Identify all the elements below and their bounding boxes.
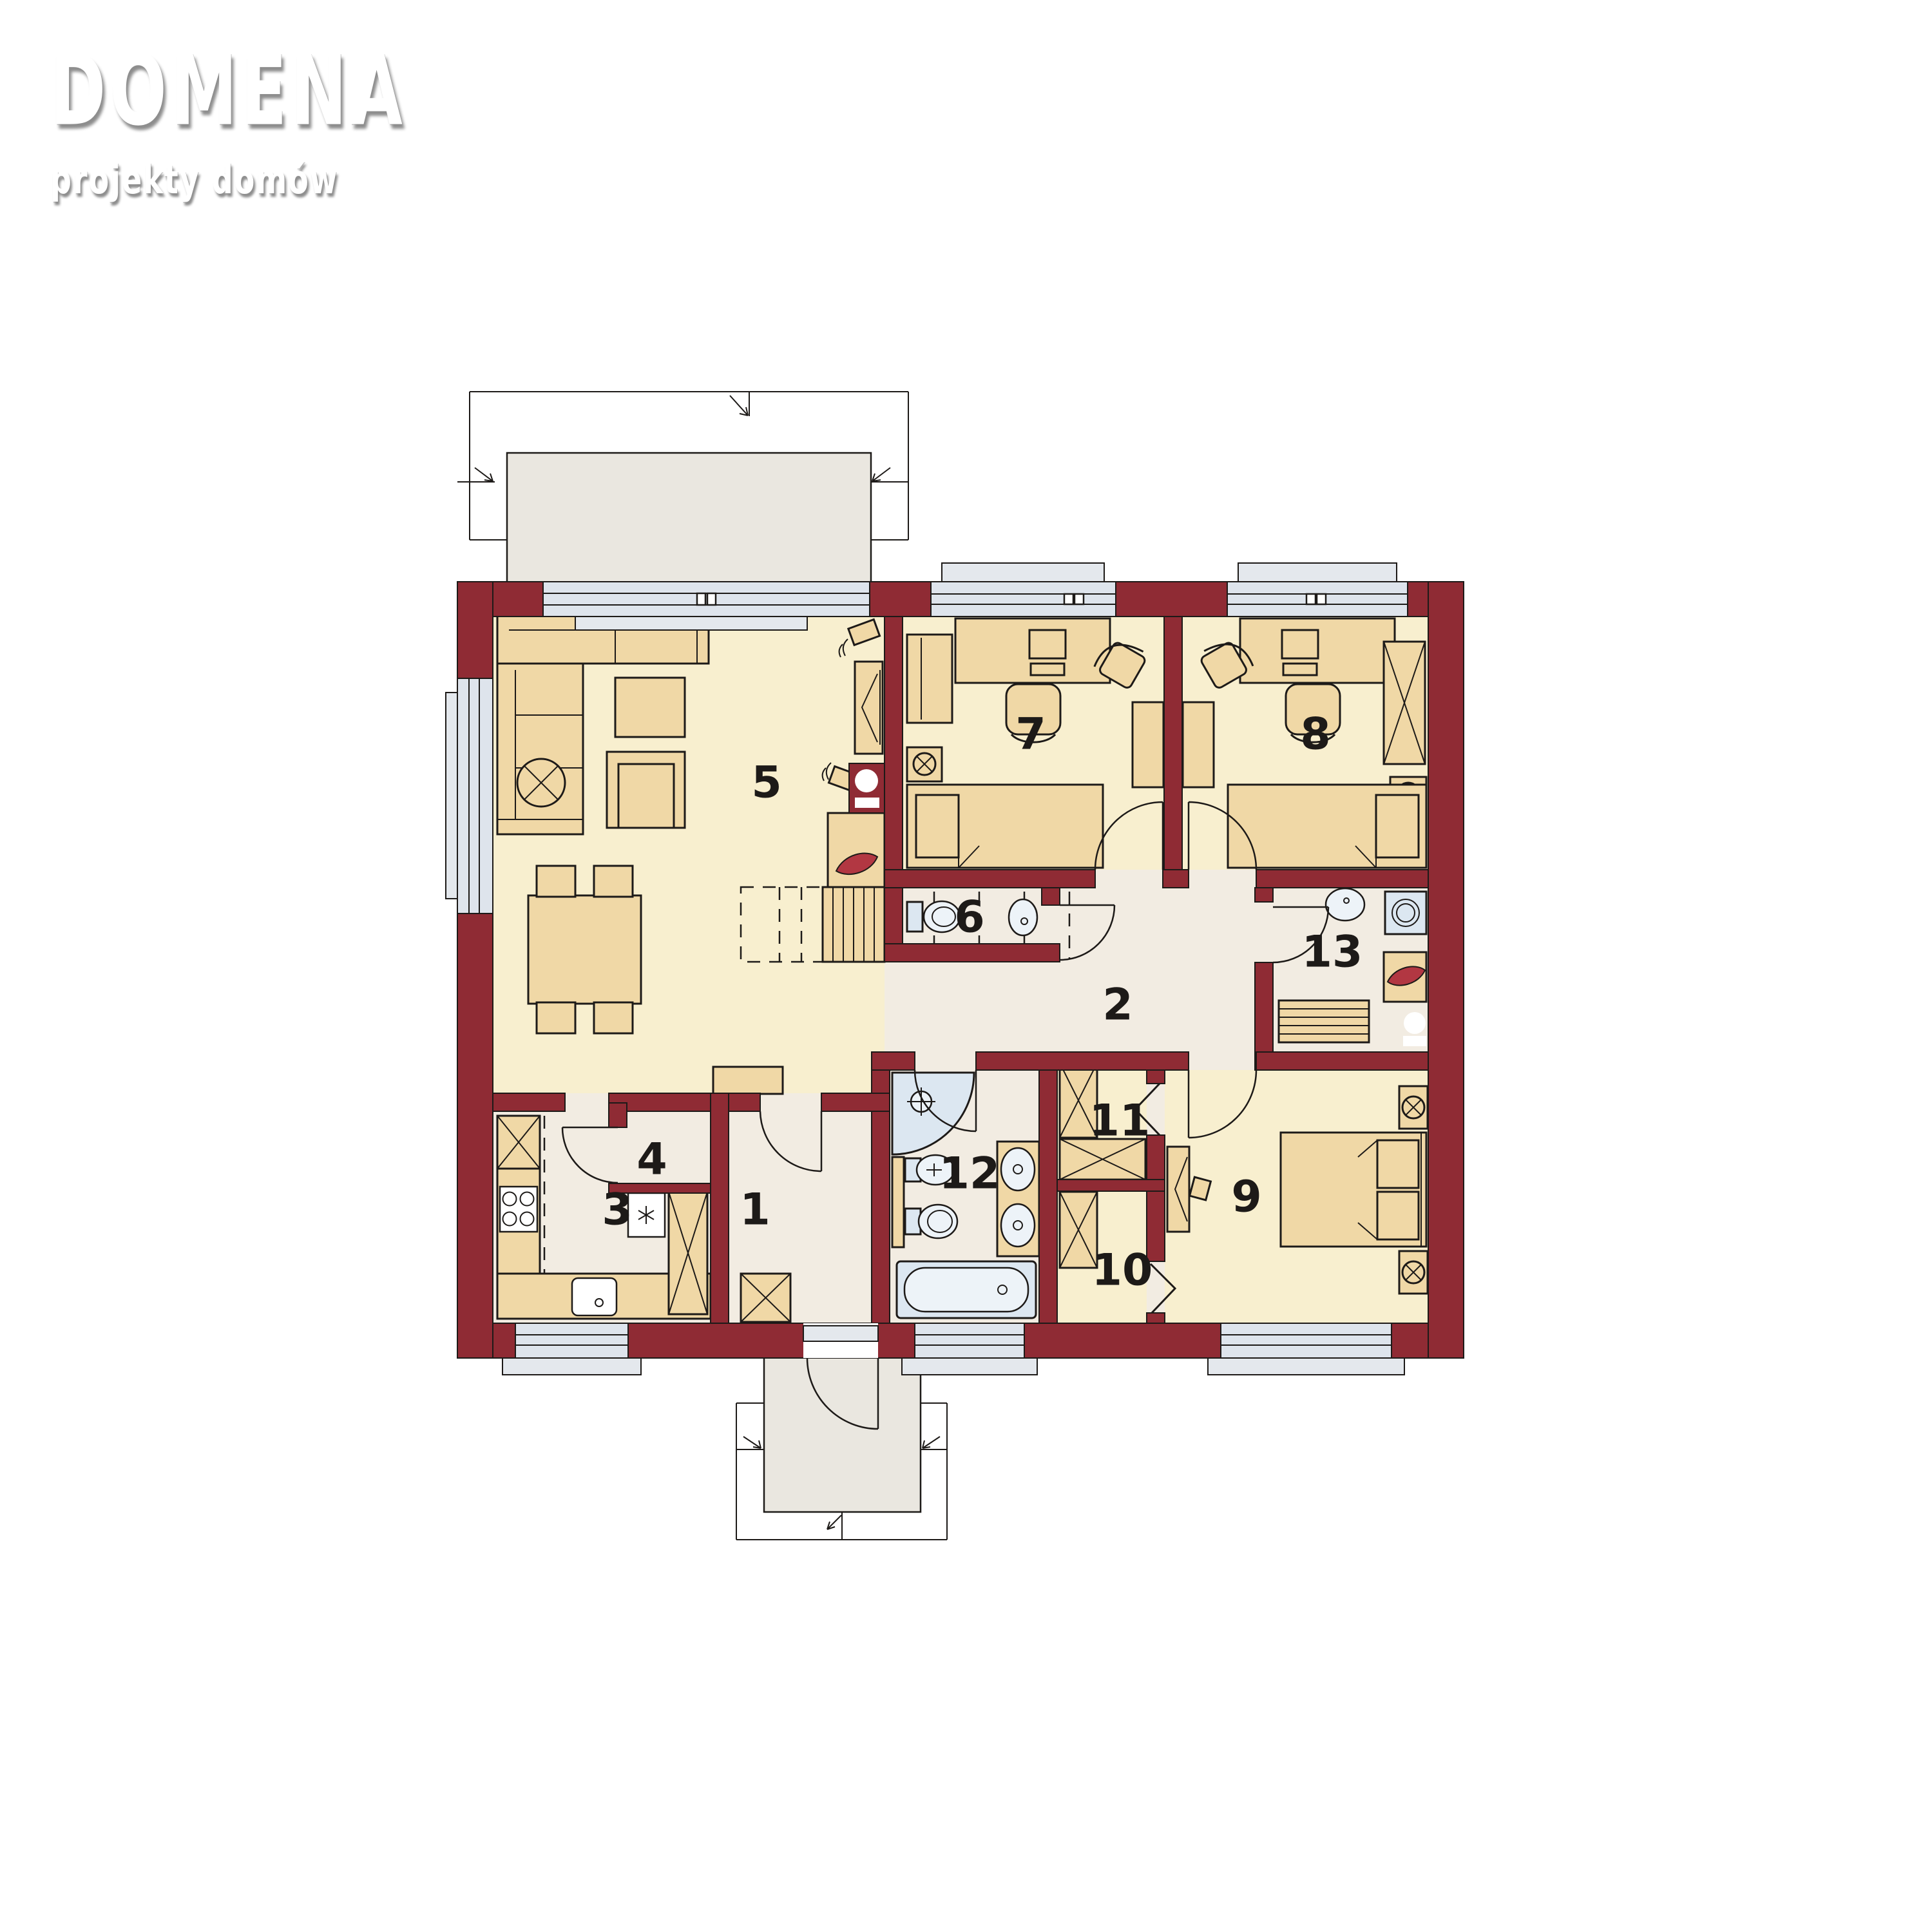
dining-chair — [537, 866, 575, 897]
wall-7-8 — [1164, 617, 1182, 871]
page: DOMENA projekty domów — [0, 0, 1932, 1932]
washbasin — [1009, 899, 1037, 935]
pillow — [916, 795, 959, 857]
terrace-arrow-top — [730, 392, 749, 416]
pillow — [1377, 1140, 1419, 1188]
wall-exterior-right — [1428, 582, 1464, 1358]
terrace-floor — [507, 453, 871, 586]
window-sill — [1238, 563, 1397, 582]
wall-hall-top-stub — [821, 1093, 890, 1111]
wall-toilet-bottom — [885, 944, 1060, 962]
pillow — [1377, 1192, 1419, 1239]
terrace — [457, 392, 908, 586]
porch-arrow-right — [921, 1437, 947, 1449]
boiler-vent-icon — [1403, 1036, 1426, 1046]
porch-arrow-bottom — [827, 1515, 841, 1529]
window-sill — [902, 1358, 1037, 1375]
window-mullion — [1064, 594, 1073, 604]
wall-5-7 — [885, 617, 903, 962]
wall-kitchen-hall — [711, 1093, 729, 1323]
window-mullion — [1075, 594, 1084, 604]
drying-rack — [1279, 1000, 1369, 1042]
entrance-threshold — [803, 1326, 878, 1341]
wall-pantry-left-stub — [609, 1103, 627, 1127]
room-label-2: 2 — [1102, 980, 1133, 1031]
shelf-cabinet — [1133, 702, 1163, 787]
window-sill — [1208, 1358, 1404, 1375]
chimney-vent-icon — [855, 798, 879, 808]
dining-table — [528, 895, 641, 1004]
wall-south-b — [976, 1052, 1189, 1070]
armchair-seat — [618, 764, 674, 828]
wall-south-a — [872, 1052, 915, 1070]
floor-plan: 12345678910111213 — [0, 0, 1932, 1932]
window-mullion — [1317, 594, 1326, 604]
room-label-6: 6 — [954, 892, 984, 943]
window-terrace-slider — [543, 582, 870, 617]
wall-rooms-top-b — [1163, 870, 1189, 888]
window-sill — [502, 1358, 641, 1375]
window-living-left — [457, 678, 493, 913]
window-bathroom — [915, 1323, 1024, 1358]
room-label-11: 11 — [1089, 1096, 1151, 1147]
sideboard — [713, 1067, 783, 1094]
tv-cabinet — [855, 662, 883, 754]
room-label-9: 9 — [1231, 1172, 1261, 1223]
room-label-7: 7 — [1015, 709, 1046, 760]
pillow — [1376, 795, 1419, 857]
sofa-left — [497, 664, 583, 834]
entrance-porch — [736, 1357, 947, 1540]
wall-kitchen-top-b — [609, 1093, 760, 1111]
stool — [1190, 1177, 1211, 1200]
window-mullion — [1306, 594, 1315, 604]
daybed — [907, 635, 952, 723]
wall-9-left-b — [1147, 1135, 1165, 1261]
window-sill — [942, 563, 1104, 582]
wall-south-c — [1256, 1052, 1428, 1070]
keyboard-icon — [1283, 664, 1317, 675]
slider-threshold — [575, 617, 807, 630]
chimney-flue-icon — [855, 769, 878, 792]
room-label-12: 12 — [939, 1149, 1000, 1200]
dining-chair — [594, 866, 633, 897]
room-label-5: 5 — [751, 758, 781, 808]
wall-toilet-right-stub — [1042, 888, 1060, 905]
wall-rooms-top-a — [885, 870, 1095, 888]
porch-arrow-left — [736, 1437, 764, 1449]
room-label-3: 3 — [602, 1185, 632, 1236]
keyboard-icon — [1031, 664, 1064, 675]
wall-9-left-c — [1147, 1313, 1165, 1323]
washing-machine — [1385, 892, 1426, 934]
window-room7 — [931, 582, 1116, 617]
wc-tank — [907, 902, 923, 932]
bath-shelf — [892, 1157, 904, 1247]
window-mullion — [697, 593, 705, 605]
monitor-icon — [1282, 630, 1318, 658]
boiler-icon — [1404, 1012, 1426, 1034]
dining-chair — [537, 1002, 575, 1033]
wall-9-left-a — [1147, 1070, 1165, 1084]
washbasin — [1001, 1148, 1035, 1191]
kitchen-sink — [572, 1278, 617, 1315]
shelf-cabinet — [1183, 702, 1214, 787]
room-label-10: 10 — [1092, 1245, 1153, 1296]
window-room9 — [1221, 1323, 1392, 1358]
room-label-1: 1 — [740, 1185, 770, 1236]
window-sill — [446, 693, 457, 899]
room-label-8: 8 — [1300, 709, 1330, 760]
terrace-arrow-right — [871, 468, 908, 482]
wall-bath-right — [1039, 1070, 1057, 1323]
room-label-4: 4 — [636, 1134, 667, 1185]
washbasin — [1001, 1204, 1035, 1247]
terrace-arrow-left — [457, 468, 495, 482]
room-label-13: 13 — [1302, 927, 1363, 978]
window-mullion — [707, 593, 716, 605]
wall-rooms-top-c — [1256, 870, 1428, 888]
bathtub-inner — [904, 1268, 1028, 1312]
porch-floor — [764, 1357, 921, 1512]
coffee-table — [615, 678, 685, 737]
window-kitchen — [515, 1323, 628, 1358]
wall-kitchen-top-a — [493, 1093, 565, 1111]
dining-chair — [594, 1002, 633, 1033]
utility-sink — [1326, 888, 1364, 921]
monitor-icon — [1029, 630, 1066, 658]
wall-13-stub-top — [1255, 888, 1273, 902]
wall-10-11 — [1057, 1180, 1165, 1191]
